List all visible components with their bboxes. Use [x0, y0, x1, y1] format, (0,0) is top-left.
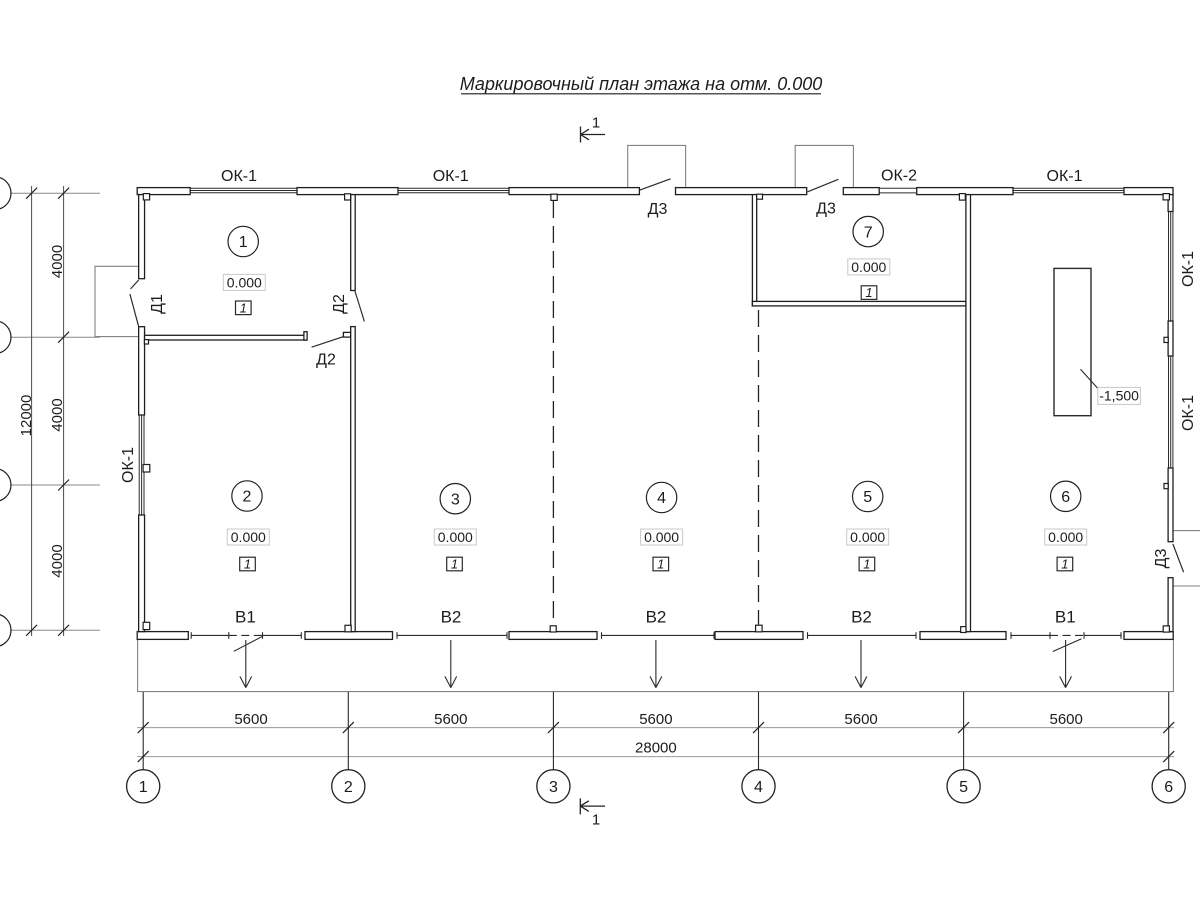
svg-text:0.000: 0.000: [851, 259, 886, 275]
svg-text:ОК-1: ОК-1: [1047, 168, 1083, 185]
svg-text:В2: В2: [441, 607, 462, 626]
svg-text:5600: 5600: [434, 711, 467, 728]
svg-text:1: 1: [863, 557, 870, 572]
svg-text:6: 6: [1061, 489, 1070, 506]
svg-text:12000: 12000: [18, 395, 35, 437]
svg-text:0.000: 0.000: [231, 529, 266, 545]
svg-text:5600: 5600: [1050, 711, 1083, 728]
svg-text:Д2: Д2: [331, 294, 348, 314]
svg-text:Д2: Д2: [316, 352, 336, 369]
svg-text:В2: В2: [851, 607, 872, 626]
svg-text:1: 1: [592, 115, 600, 132]
svg-text:4: 4: [754, 779, 763, 796]
svg-text:ОК-1: ОК-1: [120, 447, 137, 483]
svg-text:0.000: 0.000: [1048, 529, 1083, 545]
svg-text:5: 5: [959, 779, 968, 796]
svg-text:В1: В1: [235, 607, 256, 626]
svg-text:4000: 4000: [49, 544, 66, 577]
svg-text:0.000: 0.000: [850, 529, 885, 545]
svg-text:5600: 5600: [234, 711, 267, 728]
svg-text:4000: 4000: [49, 245, 66, 278]
svg-text:1: 1: [451, 557, 458, 572]
svg-text:0.000: 0.000: [227, 274, 262, 290]
svg-text:0.000: 0.000: [644, 529, 679, 545]
svg-text:28000: 28000: [635, 740, 677, 757]
svg-text:2: 2: [243, 489, 252, 506]
svg-text:5600: 5600: [639, 711, 672, 728]
svg-text:0.000: 0.000: [438, 529, 473, 545]
svg-text:6: 6: [1164, 779, 1173, 796]
svg-text:1: 1: [239, 234, 248, 251]
svg-text:ОК-2: ОК-2: [881, 167, 917, 184]
svg-text:Д3: Д3: [1153, 549, 1170, 569]
svg-text:Д1: Д1: [149, 294, 166, 314]
svg-text:Маркировочный план этажа на от: Маркировочный план этажа на отм. 0.000: [460, 74, 823, 94]
svg-text:Д3: Д3: [648, 201, 668, 218]
svg-text:3: 3: [549, 779, 558, 796]
svg-text:7: 7: [864, 224, 873, 241]
svg-text:-1,500: -1,500: [1099, 387, 1139, 403]
svg-text:4000: 4000: [49, 398, 66, 431]
svg-text:2: 2: [344, 779, 353, 796]
svg-text:ОК-1: ОК-1: [221, 168, 257, 185]
svg-text:1: 1: [1061, 557, 1068, 572]
svg-text:1: 1: [592, 812, 600, 829]
svg-text:5: 5: [863, 489, 872, 506]
svg-text:ОК-1: ОК-1: [1180, 251, 1197, 287]
svg-text:В1: В1: [1055, 607, 1076, 626]
svg-text:4: 4: [657, 490, 666, 507]
svg-text:5600: 5600: [844, 711, 877, 728]
svg-text:1: 1: [657, 557, 664, 572]
svg-text:ОК-1: ОК-1: [433, 168, 469, 185]
svg-text:1: 1: [139, 779, 148, 796]
svg-text:Д3: Д3: [816, 201, 836, 218]
svg-text:1: 1: [244, 557, 251, 572]
svg-text:1: 1: [865, 285, 872, 300]
svg-text:В2: В2: [646, 607, 667, 626]
svg-text:ОК-1: ОК-1: [1180, 395, 1197, 431]
svg-text:3: 3: [451, 491, 460, 508]
svg-text:1: 1: [240, 300, 247, 315]
